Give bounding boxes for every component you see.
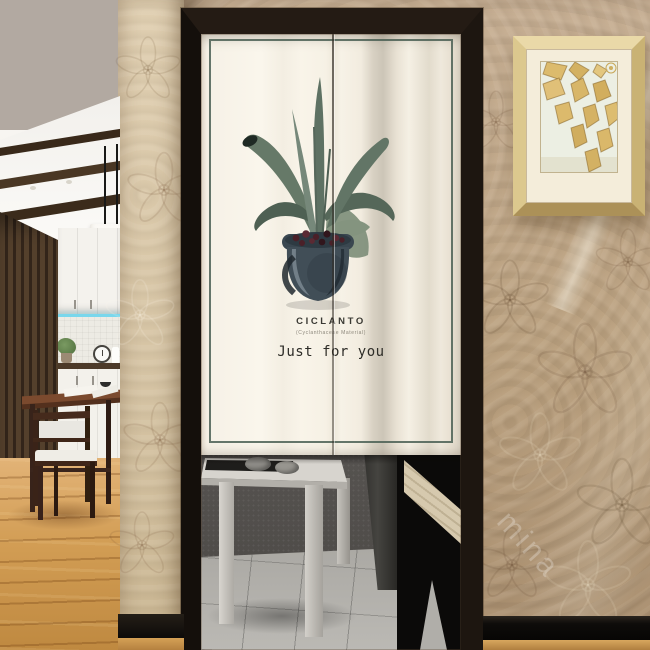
cabinet-handle	[92, 376, 94, 385]
clock	[93, 345, 111, 363]
chair-back-panel	[39, 421, 85, 439]
table-leg	[106, 400, 111, 504]
dining-room-view	[0, 0, 120, 650]
cabinet-handle	[76, 376, 78, 385]
downlight	[66, 180, 72, 184]
gold-leaf-art	[541, 62, 618, 173]
chair-leg	[90, 462, 95, 518]
wallpaper-left-column	[118, 0, 184, 650]
oak-floor	[0, 458, 120, 650]
bottle	[112, 347, 119, 363]
chair-mid-rail	[33, 438, 90, 442]
furniture-shadow	[8, 500, 120, 530]
pendant-rod	[116, 144, 118, 226]
chair-leg	[38, 466, 43, 520]
counter-plant-pot	[61, 353, 72, 363]
chair-seat-frame	[35, 461, 97, 466]
chair-leg	[54, 466, 58, 516]
framed-artwork	[540, 61, 618, 173]
upper-cabinets	[58, 228, 120, 314]
pendant-rod	[104, 146, 106, 226]
floor-strip-left	[118, 638, 184, 650]
cabinet-handle	[90, 300, 92, 309]
downlight	[30, 186, 36, 190]
product-photo: CICLANTO (Cyclanthaceae Material) Just f…	[0, 0, 650, 650]
door-frame	[181, 8, 483, 650]
picture-frame	[513, 36, 645, 216]
baseboard-left	[118, 614, 184, 640]
cabinet-handle	[74, 300, 76, 309]
